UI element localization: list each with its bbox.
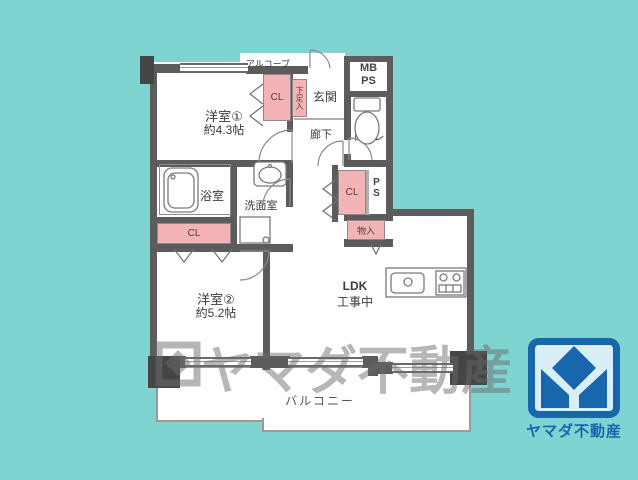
company-logo-icon [528, 338, 620, 418]
ps-label: PS [350, 75, 387, 88]
pillar [140, 56, 154, 84]
wall [150, 244, 293, 252]
closet3-label: CL [346, 187, 359, 198]
shoe-storage-label: 下足入 [294, 86, 305, 110]
wall [344, 239, 393, 247]
ps-divider [366, 170, 369, 215]
entrance-label: 玄関 [313, 88, 337, 105]
washroom-label: 洗面室 [245, 197, 278, 213]
mb-label: MB [350, 62, 387, 75]
room1-size: 約4.3帖 [204, 121, 245, 138]
hallway-label: 廊下 [310, 126, 332, 142]
room2-size: 約5.2帖 [196, 304, 237, 321]
closet1-label: CL [271, 92, 284, 103]
entrance-step-line [294, 118, 344, 120]
storage-label: 物入 [357, 224, 375, 237]
meter-box: MB PS [344, 56, 393, 97]
closet-3: CL [338, 170, 366, 215]
toilet-label: トイレ [352, 128, 385, 144]
floorplan-page: MB PS CL 下足入 CL CL 物入 PS [0, 0, 638, 480]
wall [230, 165, 237, 245]
ldk-status: 工事中 [337, 293, 373, 310]
shoe-storage: 下足入 [292, 79, 307, 117]
bathroom-label: 浴室 [200, 187, 224, 204]
watermark-text: ヤマダ不動産 [201, 329, 513, 404]
closet-2: CL [157, 223, 231, 244]
watermark-logo-icon [155, 341, 201, 387]
closet2-label: CL [188, 228, 201, 239]
storage-monoire: 物入 [347, 220, 385, 240]
ps2-label: PS [371, 177, 382, 199]
wall [386, 209, 474, 216]
window [180, 63, 248, 73]
closet-1: CL [263, 74, 291, 121]
ldk-name: LDK [343, 279, 368, 293]
alcove-label: アルコーブ [246, 57, 290, 70]
wall [286, 165, 293, 207]
wall [344, 93, 351, 140]
company-logo-name: ヤマダ不動産 [522, 420, 626, 441]
wall [344, 160, 393, 167]
